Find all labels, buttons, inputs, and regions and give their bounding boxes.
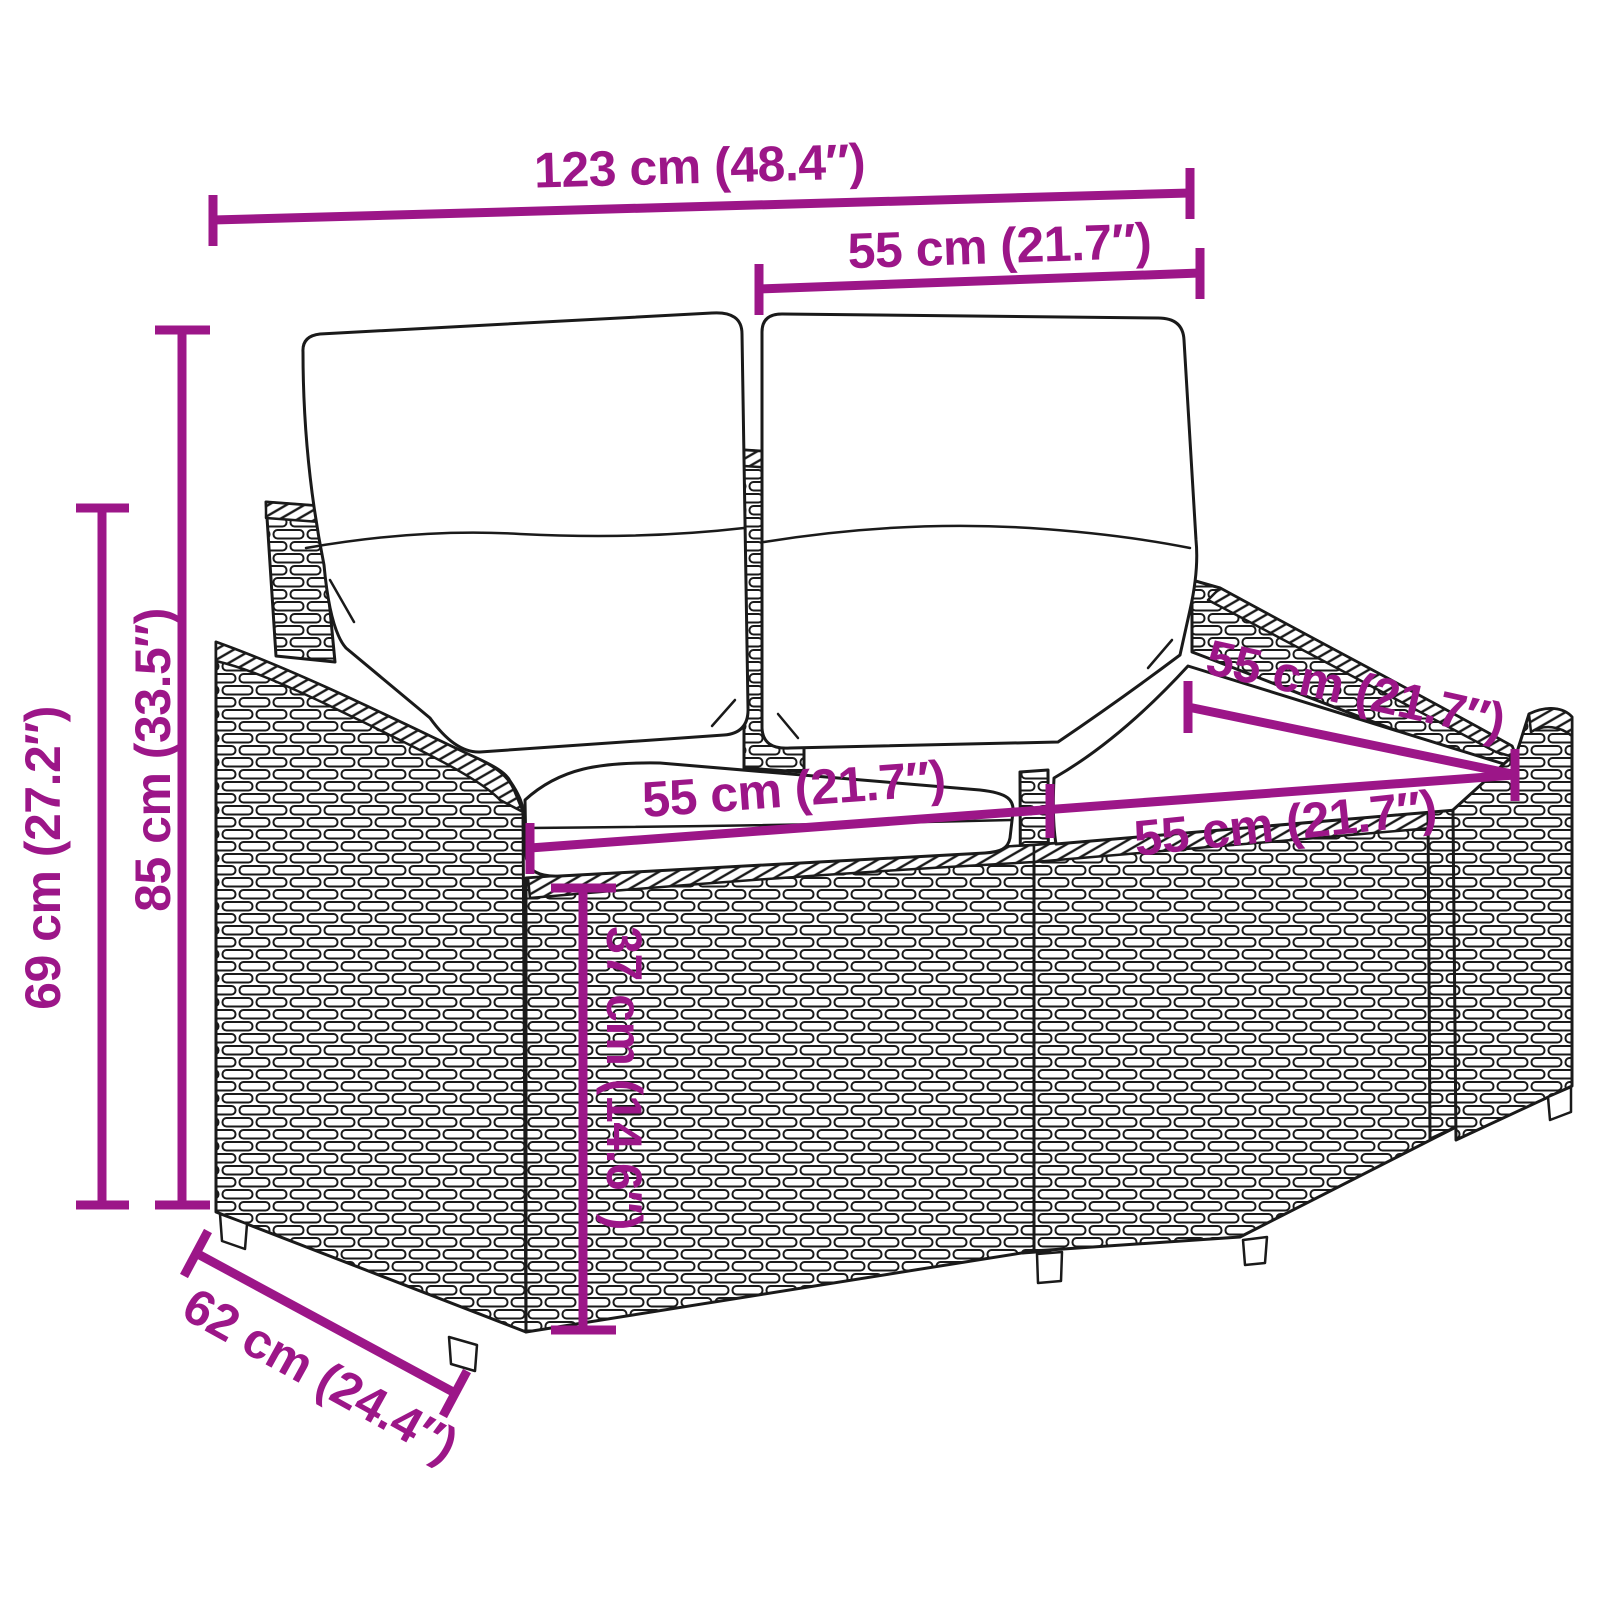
foot-front-left [449, 1337, 477, 1371]
dim-back-cushion-width-label: 55 cm (21.7″) [847, 213, 1153, 280]
back-left-post-braid [266, 502, 320, 522]
dim-overall-width-label: 123 cm (48.4″) [533, 133, 865, 198]
dimension-diagram: 123 cm (48.4″) 55 cm (21.7″) 85 cm (33.5… [0, 0, 1600, 1600]
dim-armrest-height: 69 cm (27.2″) [15, 508, 129, 1205]
dim-armrest-height-label: 69 cm (27.2″) [15, 706, 71, 1010]
dim-total-height-label: 85 cm (33.5″) [125, 608, 181, 912]
back-cushion-left [303, 313, 748, 752]
dim-total-height: 85 cm (33.5″) [125, 330, 210, 1205]
dim-seat-height-label: 37 cm (14.6″) [596, 926, 652, 1230]
seat-panel-right [1034, 810, 1456, 1251]
foot-front-right [1243, 1237, 1267, 1265]
back-cushion-right [762, 314, 1197, 748]
dim-back-cushion-width: 55 cm (21.7″) [759, 213, 1200, 315]
right-front-post [1428, 810, 1456, 1139]
foot-front-middle [1037, 1252, 1062, 1283]
